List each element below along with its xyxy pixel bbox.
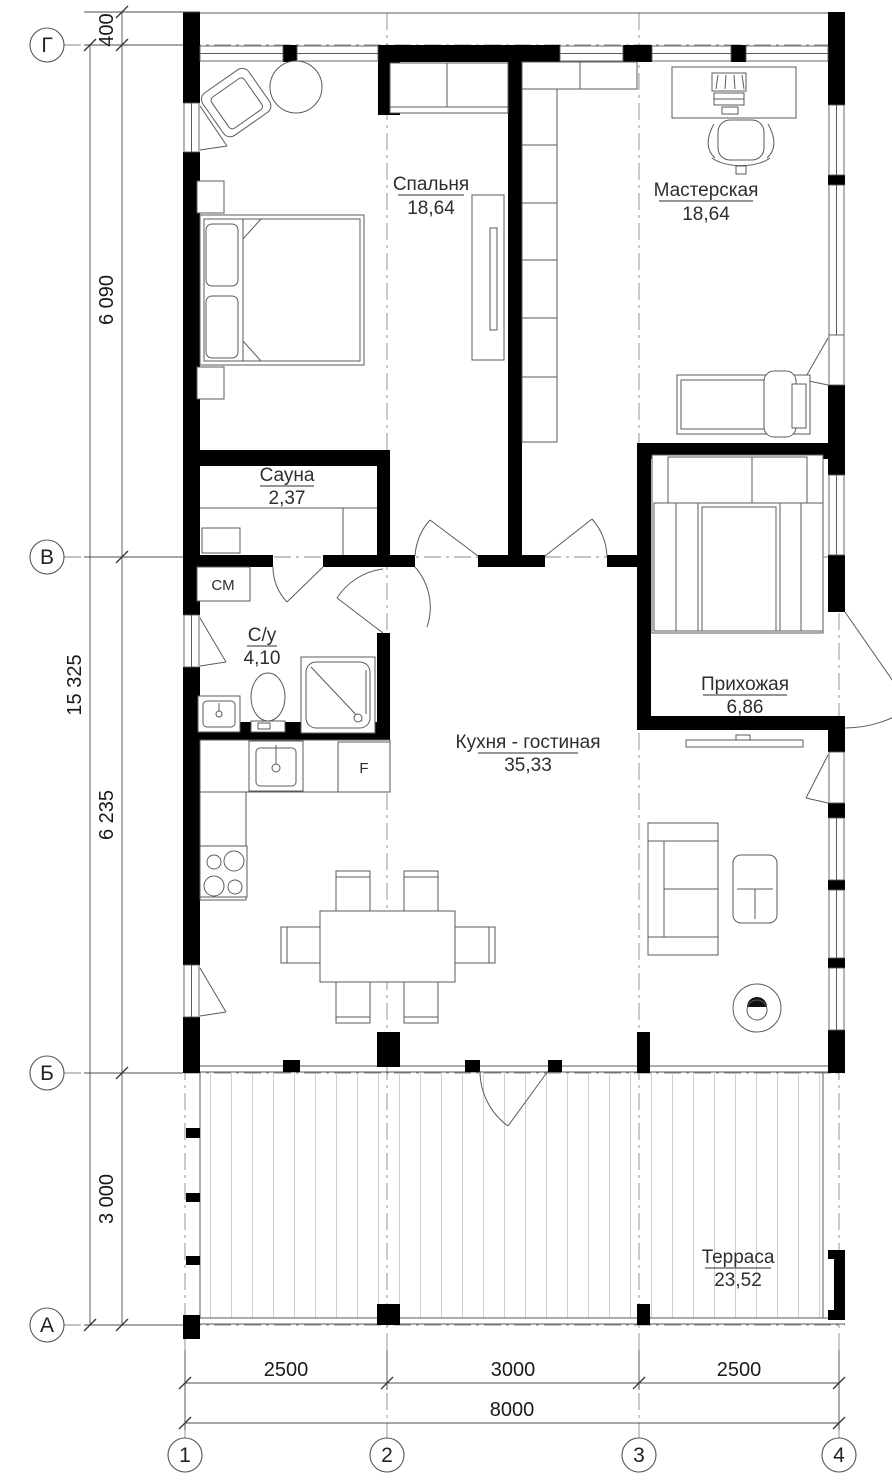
room-area: 18,64 <box>682 204 730 225</box>
door-sauna <box>273 567 323 602</box>
shower <box>301 657 375 733</box>
room-bedroom-furniture <box>197 61 508 399</box>
washer-label: СМ <box>211 577 234 594</box>
dimension-ticks <box>84 6 128 1331</box>
room-name: Терраса <box>702 1247 775 1268</box>
nightstand <box>197 181 224 213</box>
room-area: 23,52 <box>714 1270 762 1291</box>
door-entry <box>845 612 892 728</box>
room-name: Сауна <box>260 465 315 486</box>
room-area: 6,86 <box>727 697 764 718</box>
dim-left-6235: 6 235 <box>96 790 118 840</box>
room-label-hallway: Прихожая 6,86 <box>701 674 789 718</box>
grid-row-v: В <box>40 546 54 569</box>
sink-kitchen <box>249 741 303 791</box>
washing-machine: СМ <box>197 567 250 601</box>
cooktop <box>200 846 247 897</box>
dimensions-bottom: 2500 3000 2500 8000 <box>179 1350 845 1430</box>
room-sauna-fixtures <box>200 508 377 555</box>
dim-bottom-total: 8000 <box>490 1399 535 1421</box>
fridge-label: F <box>359 760 368 777</box>
bed <box>200 215 364 365</box>
tv-console-bedroom <box>472 195 504 360</box>
grid-row-g: Г <box>41 34 52 57</box>
nightstand <box>197 367 224 399</box>
cabinet-column <box>522 62 637 442</box>
room-name: Прихожая <box>701 674 789 695</box>
window-swing-icon <box>200 968 226 1016</box>
round-table <box>270 61 322 113</box>
wall-sauna-right <box>377 450 390 567</box>
room-label-sauna: Сауна 2,37 <box>260 465 315 509</box>
room-name: Мастерская <box>654 180 759 201</box>
wall-bedroom-right <box>508 62 522 555</box>
room-area: 2,37 <box>269 488 306 509</box>
grid-col-1: 1 <box>179 1444 191 1467</box>
dining-table <box>320 911 455 982</box>
armchair <box>198 65 274 140</box>
room-workshop-furniture <box>522 62 810 442</box>
sink-bathroom <box>198 696 240 732</box>
window-swing-icon <box>806 755 828 803</box>
door-bedroom <box>415 520 478 556</box>
floor-plan-canvas: СМ F <box>0 0 892 1484</box>
grid-col-2: 2 <box>381 1444 393 1467</box>
dim-left-3000: 3 000 <box>96 1174 118 1224</box>
grid-row-a: А <box>40 1314 54 1337</box>
wardrobe-bedroom <box>390 63 508 113</box>
dim-left-400: 400 <box>96 13 118 46</box>
terrace-area <box>183 1073 845 1339</box>
room-area: 18,64 <box>407 198 455 219</box>
room-name: С/у <box>248 625 277 646</box>
hallway-wardrobe <box>652 455 823 633</box>
dimensions-left: 400 6 090 6 235 3 000 15 325 <box>64 6 200 1331</box>
dim-bottom-3000: 3000 <box>491 1359 536 1381</box>
grid-col-3: 3 <box>633 1444 645 1467</box>
door-bathroom <box>337 569 383 633</box>
wall-hallway-left <box>637 443 651 730</box>
desk <box>672 67 796 118</box>
grid-bubbles-cols: 1 2 3 4 <box>168 1438 856 1472</box>
sofa <box>648 823 718 955</box>
room-label-bathroom: С/у 4,10 <box>244 625 281 669</box>
floor-lamp <box>733 984 781 1032</box>
room-living-fixtures <box>648 735 803 1032</box>
tv-living <box>686 735 803 747</box>
window-swing-icon <box>200 618 226 666</box>
room-area: 4,10 <box>244 648 281 669</box>
room-name: Кухня - гостиная <box>456 732 601 753</box>
wall-hallway-bottom <box>637 716 845 730</box>
room-label-kitchen-living: Кухня - гостиная 35,33 <box>456 732 601 776</box>
fridge: F <box>338 742 390 792</box>
door-corridor <box>415 567 430 627</box>
coffee-table <box>733 855 777 923</box>
wall-sauna-top <box>200 450 390 466</box>
dim-left-total: 15 325 <box>64 654 86 715</box>
room-label-bedroom: Спальня 18,64 <box>393 174 469 219</box>
floor-plan-page: СМ F <box>0 0 892 1484</box>
sauna-bench <box>202 528 240 553</box>
room-kitchen-fixtures: F <box>200 740 495 1023</box>
dim-bottom-2500b: 2500 <box>717 1359 762 1381</box>
door-workshop <box>545 519 607 556</box>
toilet <box>251 673 285 732</box>
room-bathroom-fixtures: СМ <box>197 567 375 733</box>
room-label-workshop: Мастерская 18,64 <box>654 180 759 225</box>
dim-bottom-2500a: 2500 <box>264 1359 309 1381</box>
office-chair <box>708 120 774 174</box>
dim-left-6090: 6 090 <box>96 275 118 325</box>
grid-col-4: 4 <box>833 1444 845 1467</box>
dining-table-set <box>281 871 495 1023</box>
grid-bubbles-rows: Г В Б А <box>30 28 64 1342</box>
room-area: 35,33 <box>504 755 552 776</box>
room-name: Спальня <box>393 174 469 195</box>
daybed <box>677 371 810 437</box>
grid-row-b: Б <box>40 1062 54 1085</box>
